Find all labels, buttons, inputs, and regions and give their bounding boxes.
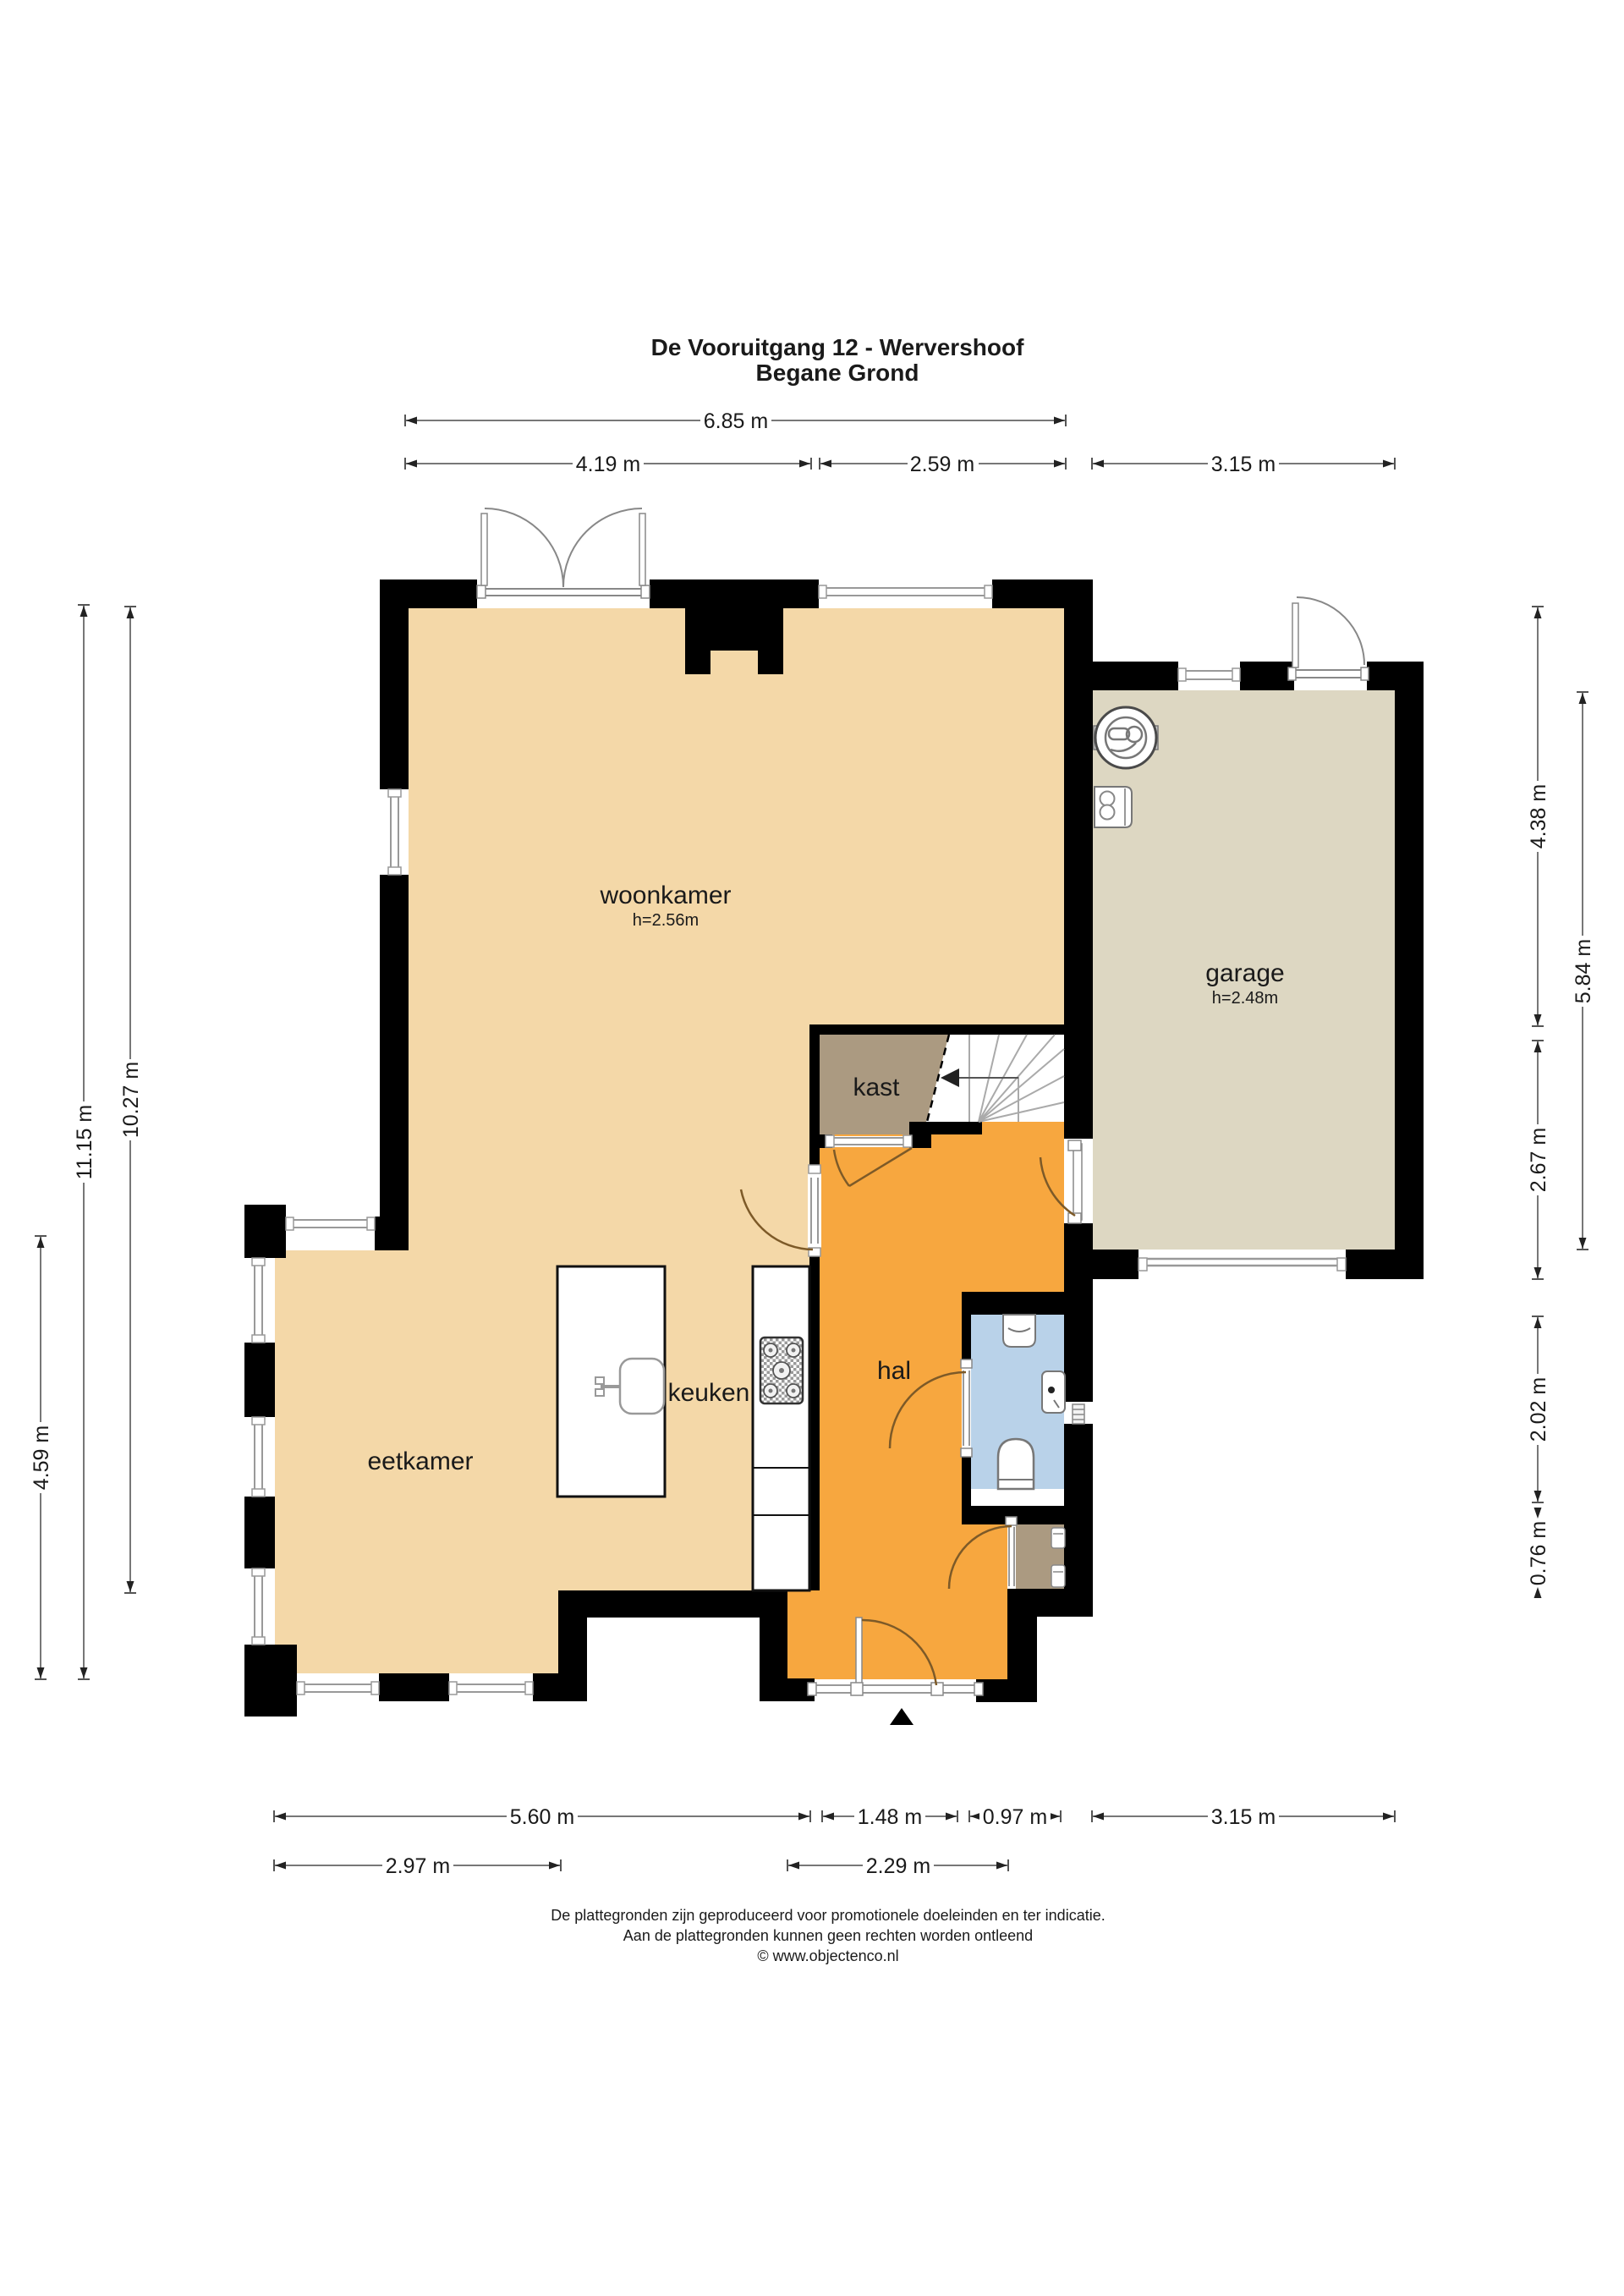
svg-text:2.29 m: 2.29 m [866, 1854, 930, 1878]
svg-text:woonkamer: woonkamer [599, 882, 731, 909]
svg-text:Aan de plattegronden kunnen ge: Aan de plattegronden kunnen geen rechten… [623, 1927, 1033, 1944]
svg-text:2.02 m: 2.02 m [1527, 1377, 1550, 1442]
svg-text:De Vooruitgang 12 - Wervershoo: De Vooruitgang 12 - Wervershoof [651, 334, 1024, 360]
svg-text:De plattegronden zijn geproduc: De plattegronden zijn geproduceerd voor … [551, 1907, 1105, 1924]
svg-text:h=2.48m: h=2.48m [1212, 989, 1278, 1008]
svg-text:1.48 m: 1.48 m [858, 1805, 922, 1829]
svg-text:hal: hal [877, 1357, 911, 1385]
svg-text:2.59 m: 2.59 m [910, 453, 974, 476]
svg-text:11.15 m: 11.15 m [73, 1105, 96, 1179]
svg-text:© www.objectenco.nl: © www.objectenco.nl [757, 1947, 898, 1964]
svg-text:0.97 m: 0.97 m [983, 1805, 1047, 1829]
svg-text:3.15 m: 3.15 m [1211, 1805, 1276, 1829]
svg-text:5.84 m: 5.84 m [1572, 939, 1595, 1003]
svg-text:4.19 m: 4.19 m [576, 453, 640, 476]
svg-text:h=2.56m: h=2.56m [633, 911, 699, 930]
svg-text:Begane Grond: Begane Grond [756, 360, 919, 386]
svg-text:2.97 m: 2.97 m [386, 1854, 450, 1878]
svg-text:6.85 m: 6.85 m [704, 409, 768, 433]
svg-text:kast: kast [853, 1074, 900, 1101]
svg-text:4.59 m: 4.59 m [30, 1425, 53, 1490]
svg-text:eetkamer: eetkamer [367, 1447, 473, 1475]
svg-text:10.27 m: 10.27 m [119, 1062, 143, 1138]
svg-text:0.76 m: 0.76 m [1527, 1521, 1550, 1585]
svg-text:garage: garage [1205, 959, 1284, 987]
svg-text:4.38 m: 4.38 m [1527, 784, 1550, 849]
svg-text:2.67 m: 2.67 m [1527, 1128, 1550, 1192]
svg-text:3.15 m: 3.15 m [1211, 453, 1276, 476]
svg-text:5.60 m: 5.60 m [510, 1805, 574, 1829]
svg-text:keuken: keuken [668, 1379, 750, 1407]
